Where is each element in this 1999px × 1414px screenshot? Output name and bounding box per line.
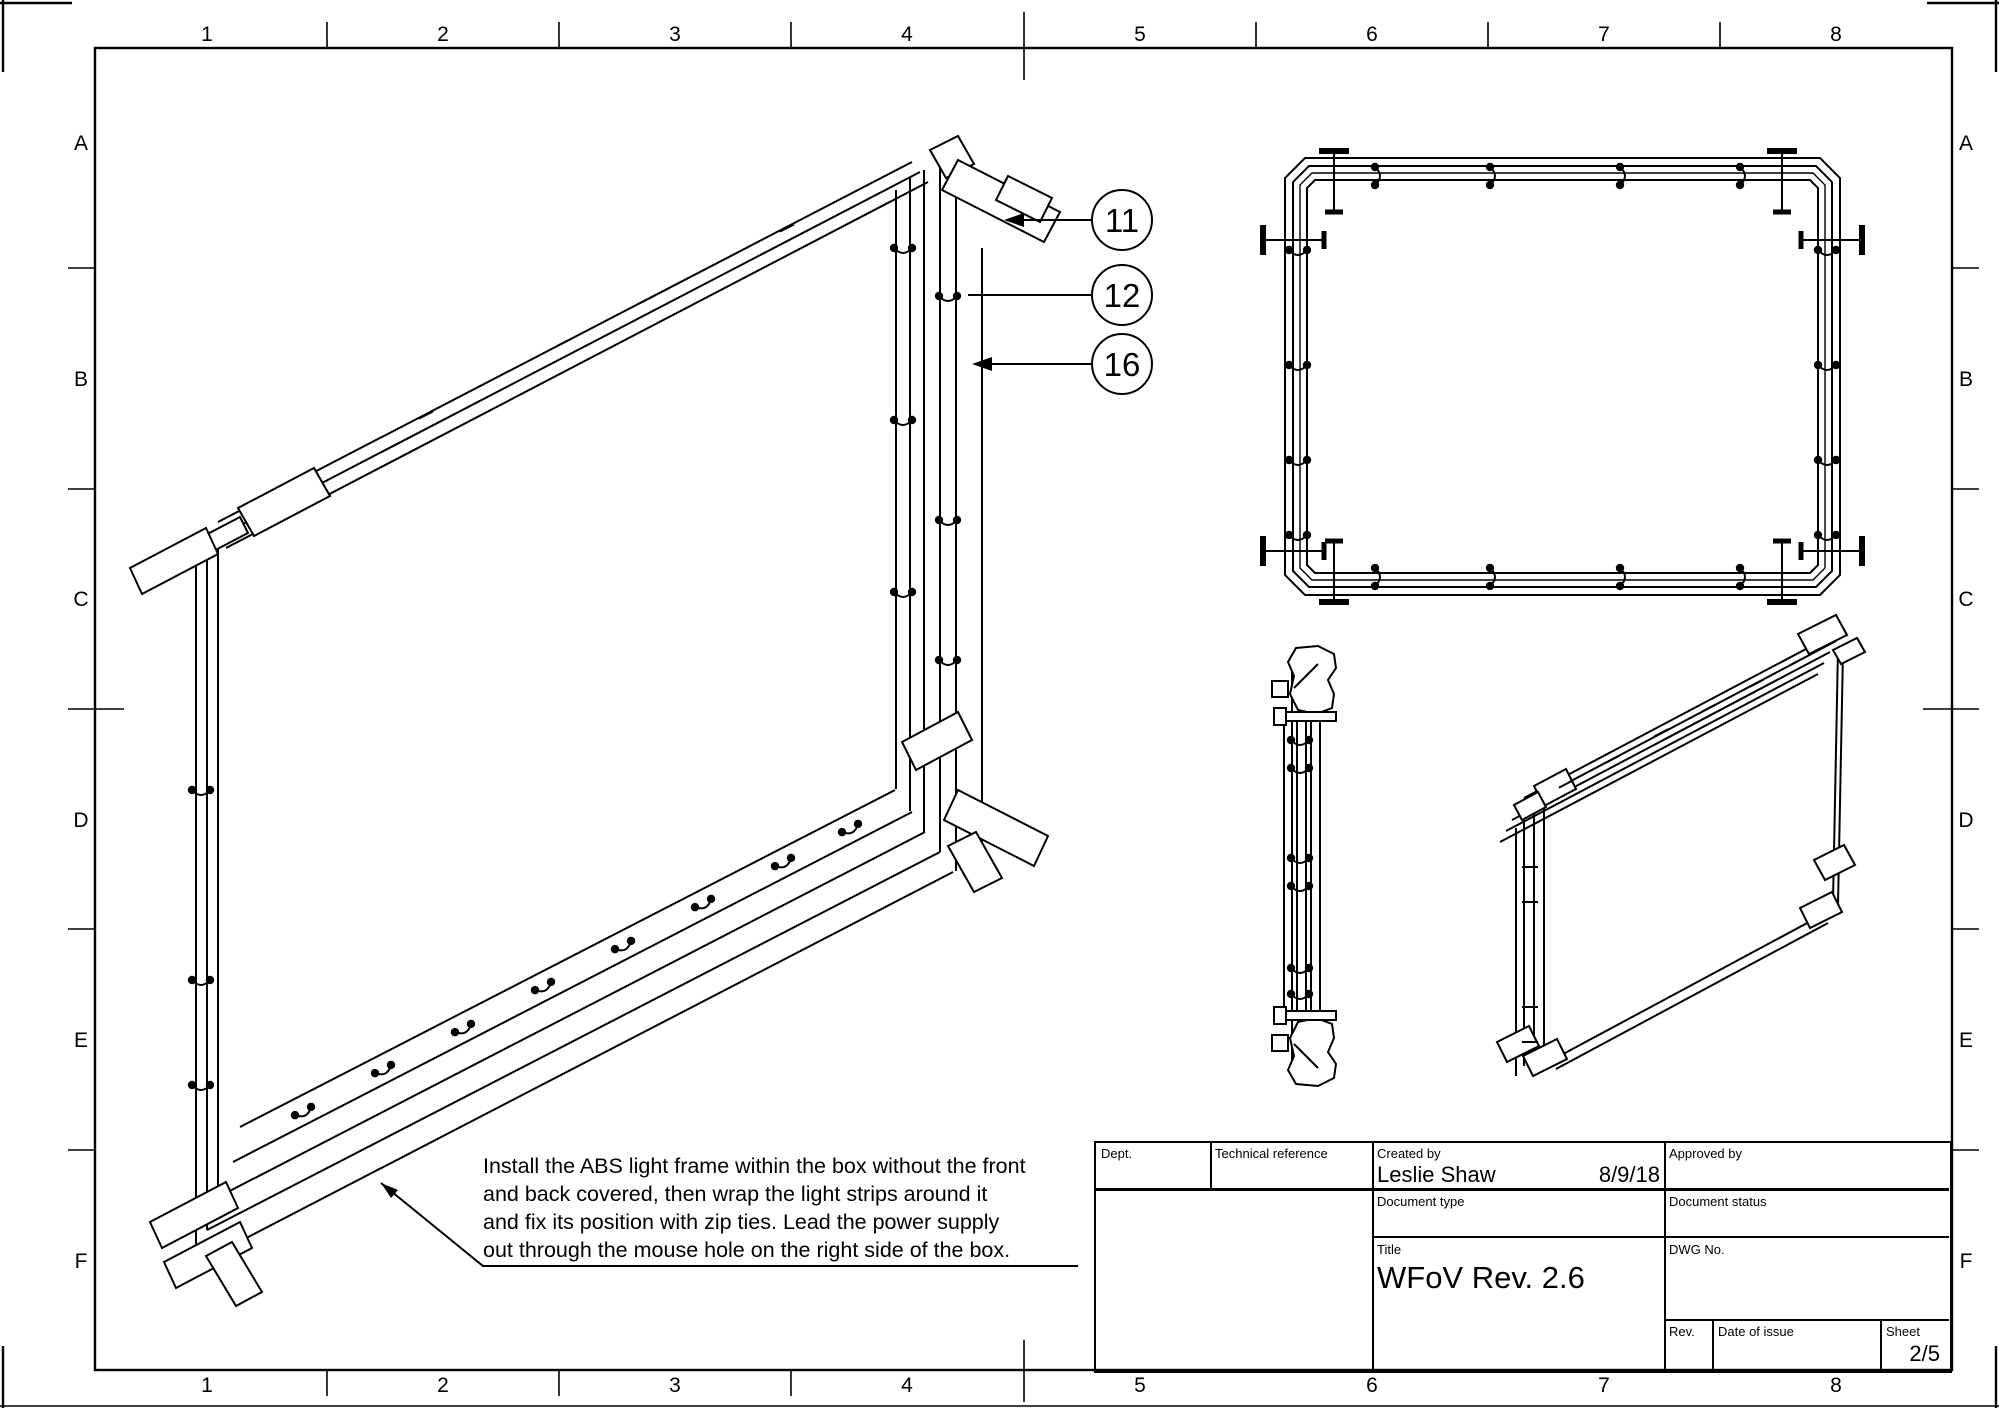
- created-by-value: Leslie Shaw: [1377, 1162, 1496, 1188]
- zip-ties-front: [1285, 163, 1840, 590]
- grid-label: C: [73, 588, 88, 611]
- drawing-sheet: 1 2 3 4 5 6 7 8 1 2 3 4 5 6 7 8 A B C D …: [0, 0, 1999, 1414]
- isometric-view-small: [1497, 615, 1865, 1076]
- sheet-label: Sheet: [1886, 1324, 1920, 1339]
- created-by-label: Created by: [1377, 1146, 1441, 1161]
- note-line: out through the mouse hole on the right …: [483, 1236, 1026, 1264]
- grid-label: 1: [201, 1374, 213, 1397]
- small-corner-brackets: [1497, 615, 1865, 1076]
- title-block: Dept. Technical reference Created by App…: [1094, 1141, 1952, 1373]
- corner-bracket-top-right: [930, 136, 1060, 242]
- balloon-label: 11: [1105, 202, 1139, 239]
- grid-label: 7: [1598, 1374, 1610, 1397]
- grid-label: E: [1959, 1029, 1973, 1052]
- grid-label: C: [1958, 588, 1973, 611]
- grid-label: F: [1960, 1250, 1973, 1273]
- created-date-value: 8/9/18: [1556, 1162, 1660, 1188]
- grid-column-labels-bottom: 1 2 3 4 5 6 7 8: [201, 1374, 1842, 1397]
- grid-label: 5: [1134, 1374, 1146, 1397]
- balloon-callouts: 11 12 16: [968, 190, 1152, 394]
- grid-label: 3: [669, 1374, 681, 1397]
- grid-label: 8: [1830, 23, 1842, 46]
- grid-label: D: [1958, 809, 1973, 832]
- note-line: Install the ABS light frame within the b…: [483, 1152, 1026, 1180]
- grid-label: F: [75, 1250, 88, 1273]
- drawing-title-value: WFoV Rev. 2.6: [1377, 1260, 1585, 1296]
- grid-label: 5: [1134, 23, 1146, 46]
- installation-note: Install the ABS light frame within the b…: [483, 1152, 1026, 1264]
- side-bracket-bottom: [1272, 1007, 1336, 1086]
- balloon-16: 16: [972, 334, 1152, 394]
- balloon-12: 12: [968, 265, 1152, 325]
- grid-label: B: [74, 368, 88, 391]
- date-of-issue-label: Date of issue: [1718, 1324, 1794, 1339]
- grid-label: 4: [901, 1374, 913, 1397]
- grid-label: 3: [669, 23, 681, 46]
- grid-row-labels-left: A B C D E F: [73, 132, 88, 1273]
- document-type-label: Document type: [1377, 1194, 1464, 1209]
- grid-label: B: [1959, 368, 1973, 391]
- grid-label: A: [74, 132, 88, 155]
- grid-label: 2: [437, 1374, 449, 1397]
- side-bracket-top: [1272, 646, 1336, 725]
- dwg-no-label: DWG No.: [1669, 1242, 1725, 1257]
- title-label: Title: [1377, 1242, 1401, 1257]
- corner-bracket-bottom-left: [150, 1182, 262, 1306]
- isometric-view-main: [130, 136, 1060, 1306]
- note-line: and back covered, then wrap the light st…: [483, 1180, 1026, 1208]
- balloon-label: 12: [1104, 277, 1141, 314]
- grid-label: 7: [1598, 23, 1610, 46]
- side-view: [1272, 646, 1336, 1086]
- approved-by-label: Approved by: [1669, 1146, 1742, 1161]
- rev-label: Rev.: [1669, 1324, 1695, 1339]
- grid-label: 6: [1366, 23, 1378, 46]
- grid-label: D: [73, 809, 88, 832]
- grid-label: 6: [1366, 1374, 1378, 1397]
- grid-label: 8: [1830, 1374, 1842, 1397]
- corner-bracket-top-left: [130, 468, 330, 594]
- technical-reference-label: Technical reference: [1215, 1146, 1328, 1161]
- grid-label: 2: [437, 23, 449, 46]
- grid-label: E: [74, 1029, 88, 1052]
- balloon-label: 16: [1104, 346, 1141, 383]
- grid-label: 4: [901, 23, 913, 46]
- grid-column-labels-top: 1 2 3 4 5 6 7 8: [201, 23, 1842, 46]
- corner-pins: [1262, 150, 1863, 603]
- note-line: and fix its position with zip ties. Lead…: [483, 1208, 1026, 1236]
- grid-label: 1: [201, 23, 213, 46]
- front-view: [1262, 150, 1863, 603]
- dept-label: Dept.: [1101, 1146, 1132, 1161]
- document-status-label: Document status: [1669, 1194, 1767, 1209]
- sheet-number-value: 2/5: [1885, 1341, 1940, 1367]
- grid-row-labels-right: A B C D E F: [1958, 132, 1973, 1273]
- zip-ties-side: [1287, 736, 1313, 999]
- grid-label: A: [1959, 132, 1973, 155]
- zip-ties-small: [1522, 657, 1805, 1042]
